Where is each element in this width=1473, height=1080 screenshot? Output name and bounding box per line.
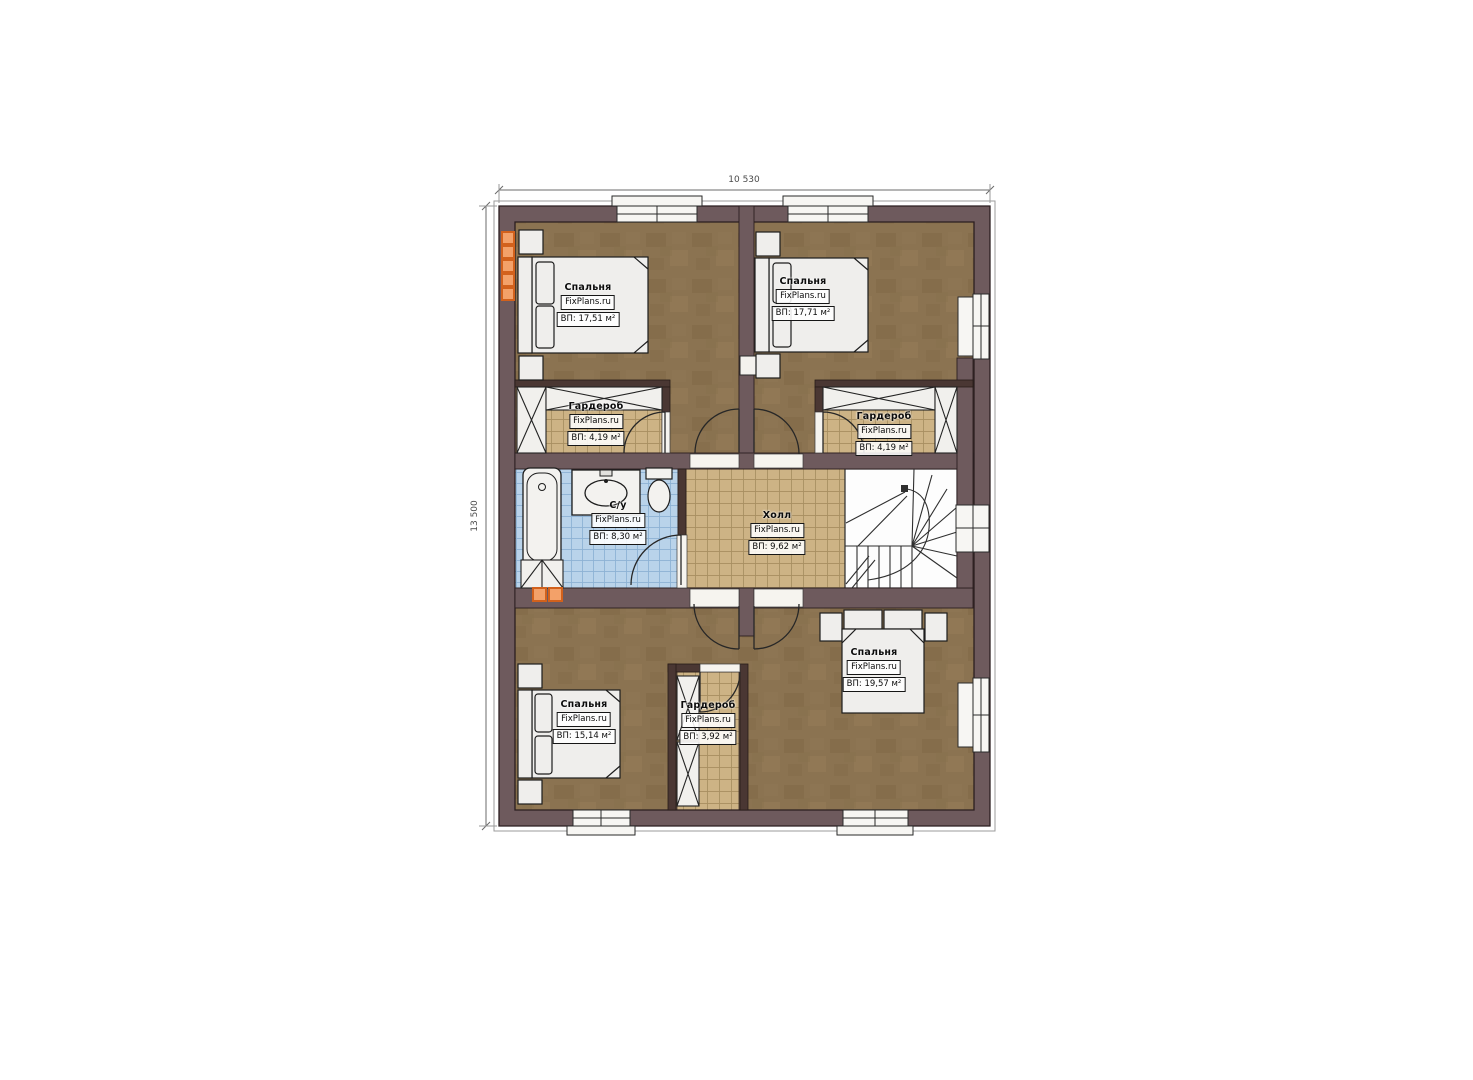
- watermark-box: FixPlans.ru: [591, 513, 645, 528]
- room-name: Холл: [763, 510, 792, 521]
- watermark-box: FixPlans.ru: [776, 289, 830, 304]
- room-name: Спальня: [565, 282, 612, 293]
- watermark-box: FixPlans.ru: [557, 712, 611, 727]
- dimension-width-label: 10 530: [728, 175, 760, 185]
- bathroom-cabinet: [521, 560, 563, 588]
- room-name: С/у: [609, 500, 626, 511]
- watermark-box: FixPlans.ru: [847, 660, 901, 675]
- room-name: Гардероб: [857, 411, 912, 422]
- room-name: Спальня: [780, 276, 827, 287]
- room-label-bedroom-top-left: Спальня FixPlans.ru ВП: 17,51 м²: [557, 282, 620, 327]
- watermark-box: FixPlans.ru: [750, 523, 804, 538]
- area-box: ВП: 17,71 м²: [772, 306, 835, 321]
- area-box: ВП: 19,57 м²: [843, 677, 906, 692]
- room-label-bedroom-bottom-right: Спальня FixPlans.ru ВП: 19,57 м²: [843, 647, 906, 692]
- room-label-bedroom-bottom-left: Спальня FixPlans.ru ВП: 15,14 м²: [553, 699, 616, 744]
- area-box: ВП: 8,30 м²: [589, 530, 646, 545]
- room-name: Гардероб: [569, 401, 624, 412]
- floor-plan-page: 10 530 13 500 Спальня FixPlans.ru ВП: 17…: [0, 0, 1473, 1080]
- watermark-box: FixPlans.ru: [569, 414, 623, 429]
- toilet: [646, 468, 672, 512]
- watermark-box: FixPlans.ru: [561, 295, 615, 310]
- area-box: ВП: 9,62 м²: [748, 540, 805, 555]
- room-label-wardrobe-bottom: Гардероб FixPlans.ru ВП: 3,92 м²: [679, 700, 736, 745]
- dimension-line-top: [495, 184, 994, 203]
- room-name: Спальня: [561, 699, 608, 710]
- dimension-height-label: 13 500: [470, 500, 480, 532]
- room-name: Спальня: [851, 647, 898, 658]
- room-name: Гардероб: [681, 700, 736, 711]
- room-label-hall: Холл FixPlans.ru ВП: 9,62 м²: [748, 510, 805, 555]
- room-label-bathroom: С/у FixPlans.ru ВП: 8,30 м²: [589, 500, 646, 545]
- area-box: ВП: 4,19 м²: [567, 431, 624, 446]
- area-box: ВП: 3,92 м²: [679, 730, 736, 745]
- area-box: ВП: 4,19 м²: [855, 441, 912, 456]
- bathtub: [523, 468, 561, 566]
- room-label-bedroom-top-right: Спальня FixPlans.ru ВП: 17,71 м²: [772, 276, 835, 321]
- floor-plan-drawing: [0, 0, 1473, 1080]
- watermark-box: FixPlans.ru: [681, 713, 735, 728]
- area-box: ВП: 15,14 м²: [553, 729, 616, 744]
- watermark-box: FixPlans.ru: [857, 424, 911, 439]
- area-box: ВП: 17,51 м²: [557, 312, 620, 327]
- room-label-wardrobe-right: Гардероб FixPlans.ru ВП: 4,19 м²: [855, 411, 912, 456]
- room-label-wardrobe-left: Гардероб FixPlans.ru ВП: 4,19 м²: [567, 401, 624, 446]
